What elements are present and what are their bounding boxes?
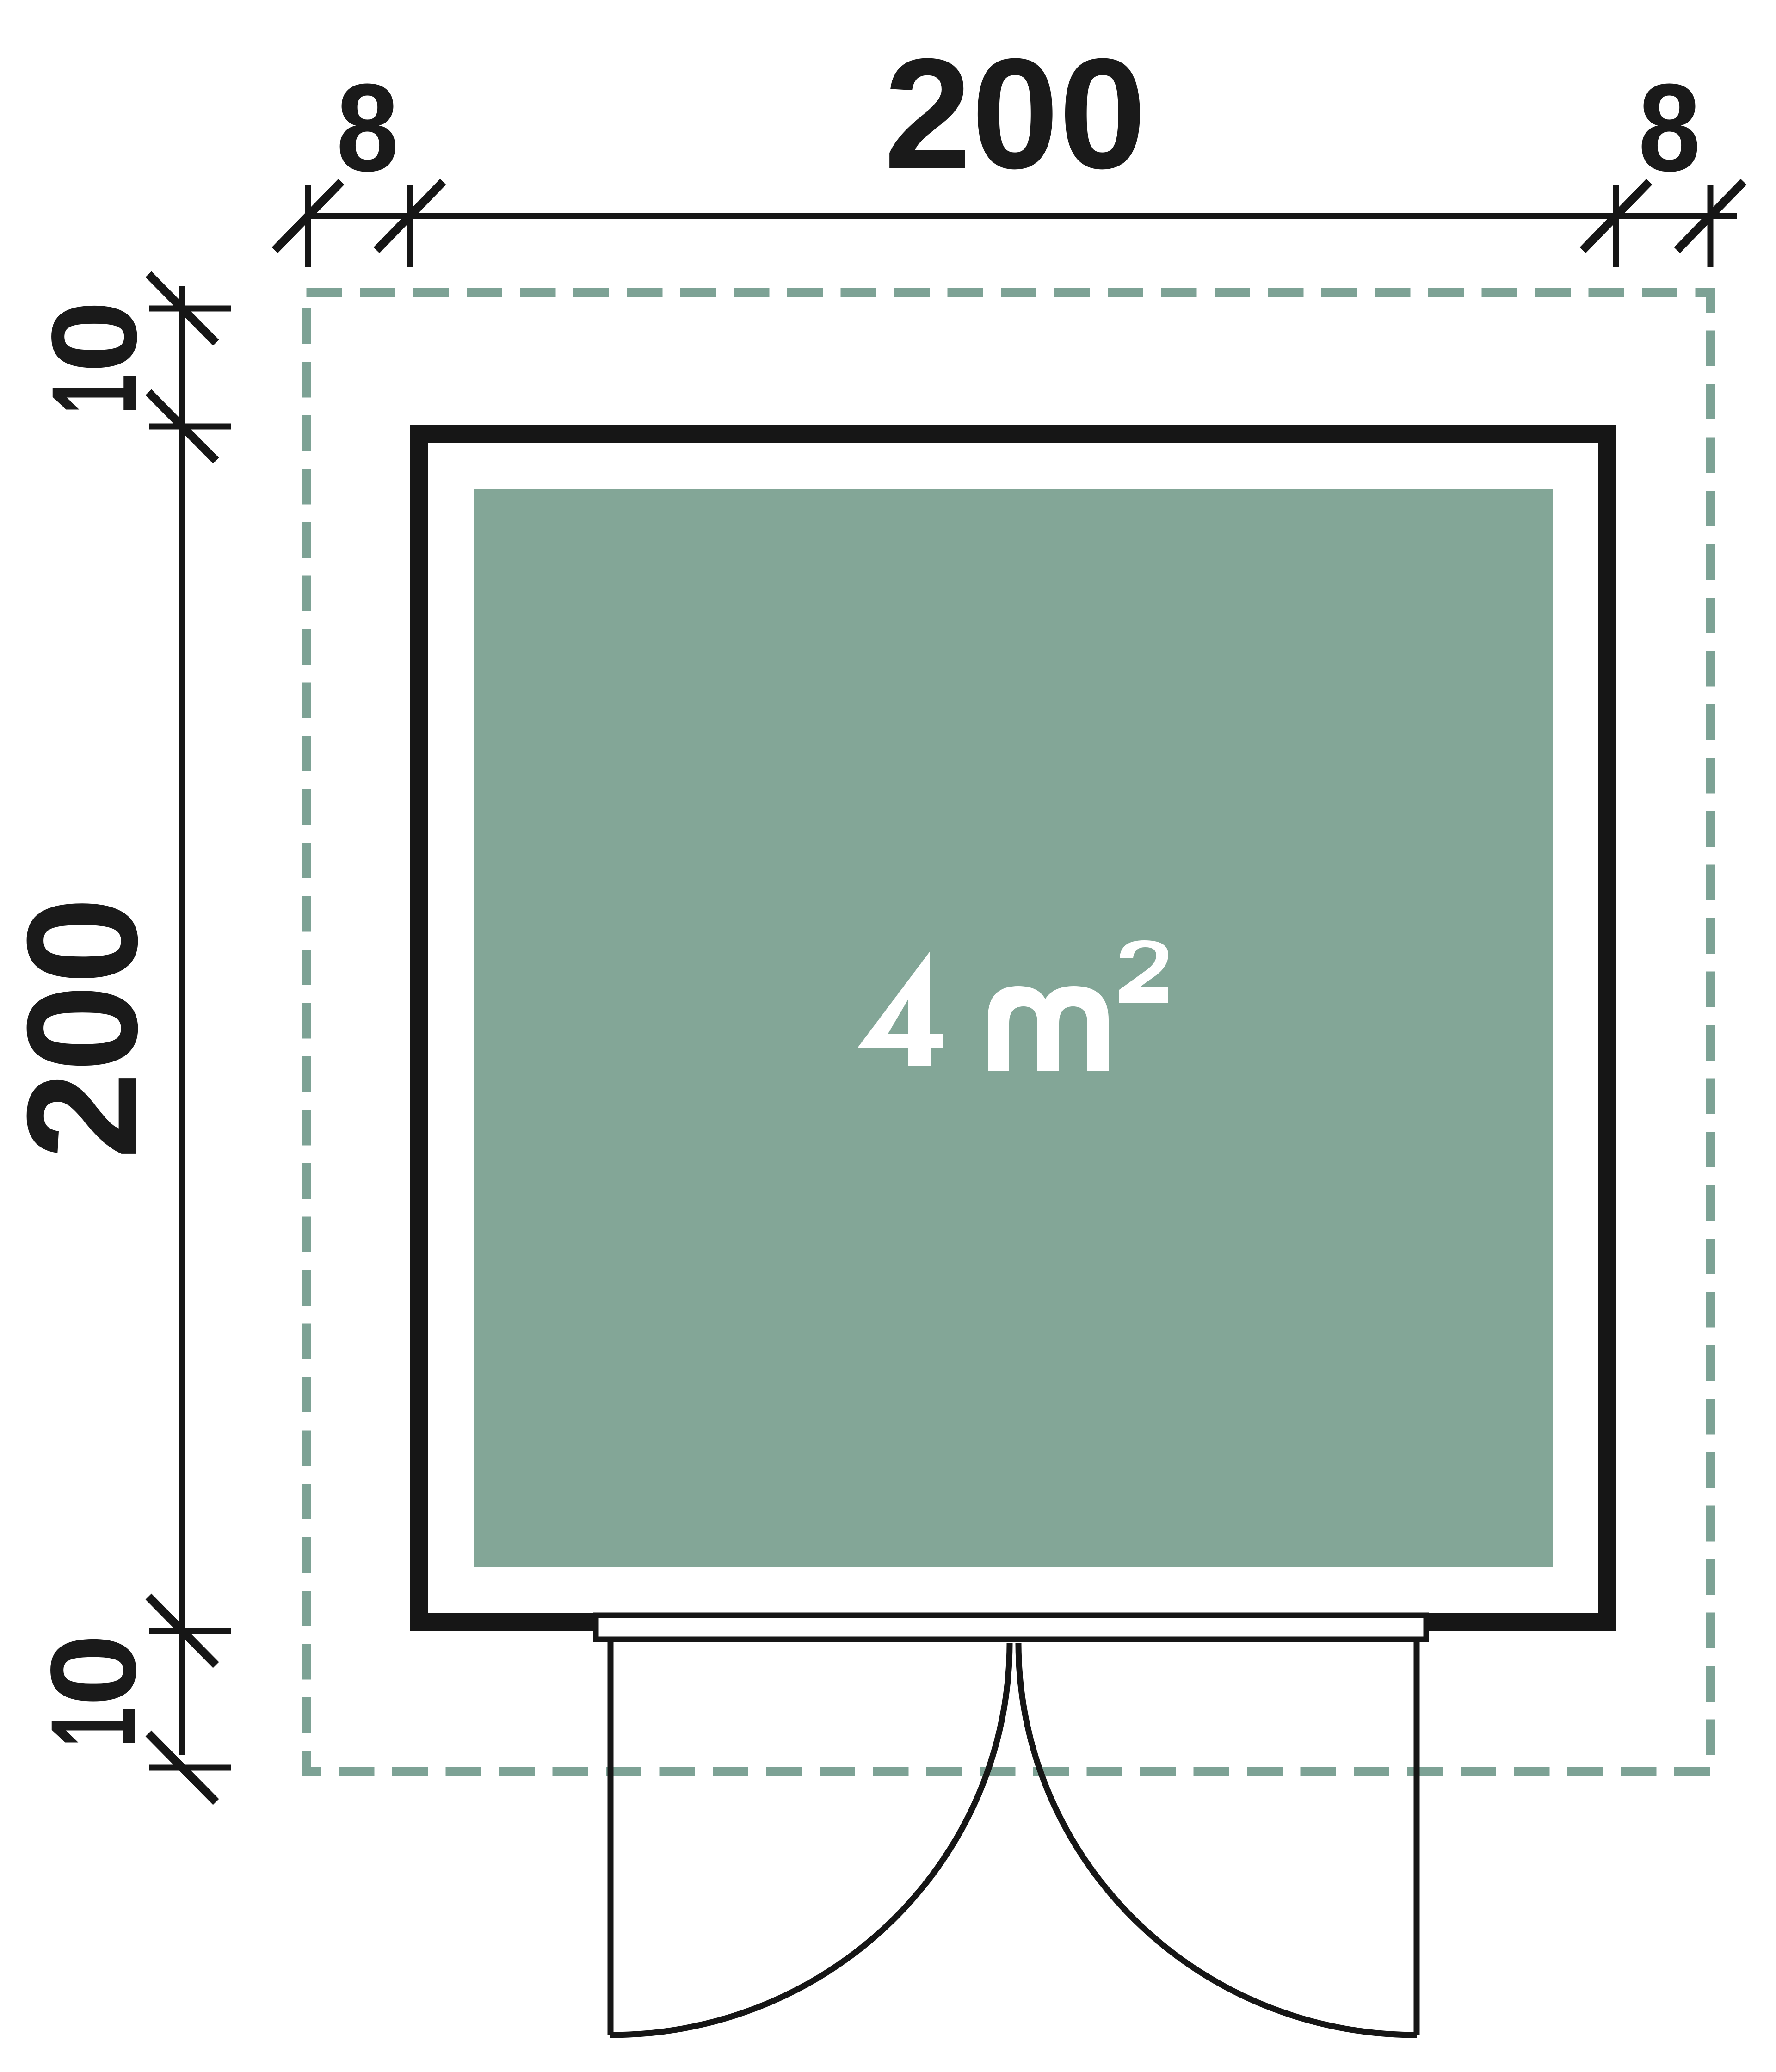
svg-text:8: 8 (1638, 58, 1701, 197)
svg-text:1: 1 (25, 1707, 160, 1747)
svg-text:1: 1 (26, 374, 161, 414)
svg-text:200: 200 (0, 897, 170, 1159)
svg-text:0: 0 (25, 1634, 161, 1706)
svg-text:0: 0 (26, 300, 162, 373)
svg-text:8: 8 (336, 58, 399, 197)
svg-text:200: 200 (884, 26, 1146, 202)
